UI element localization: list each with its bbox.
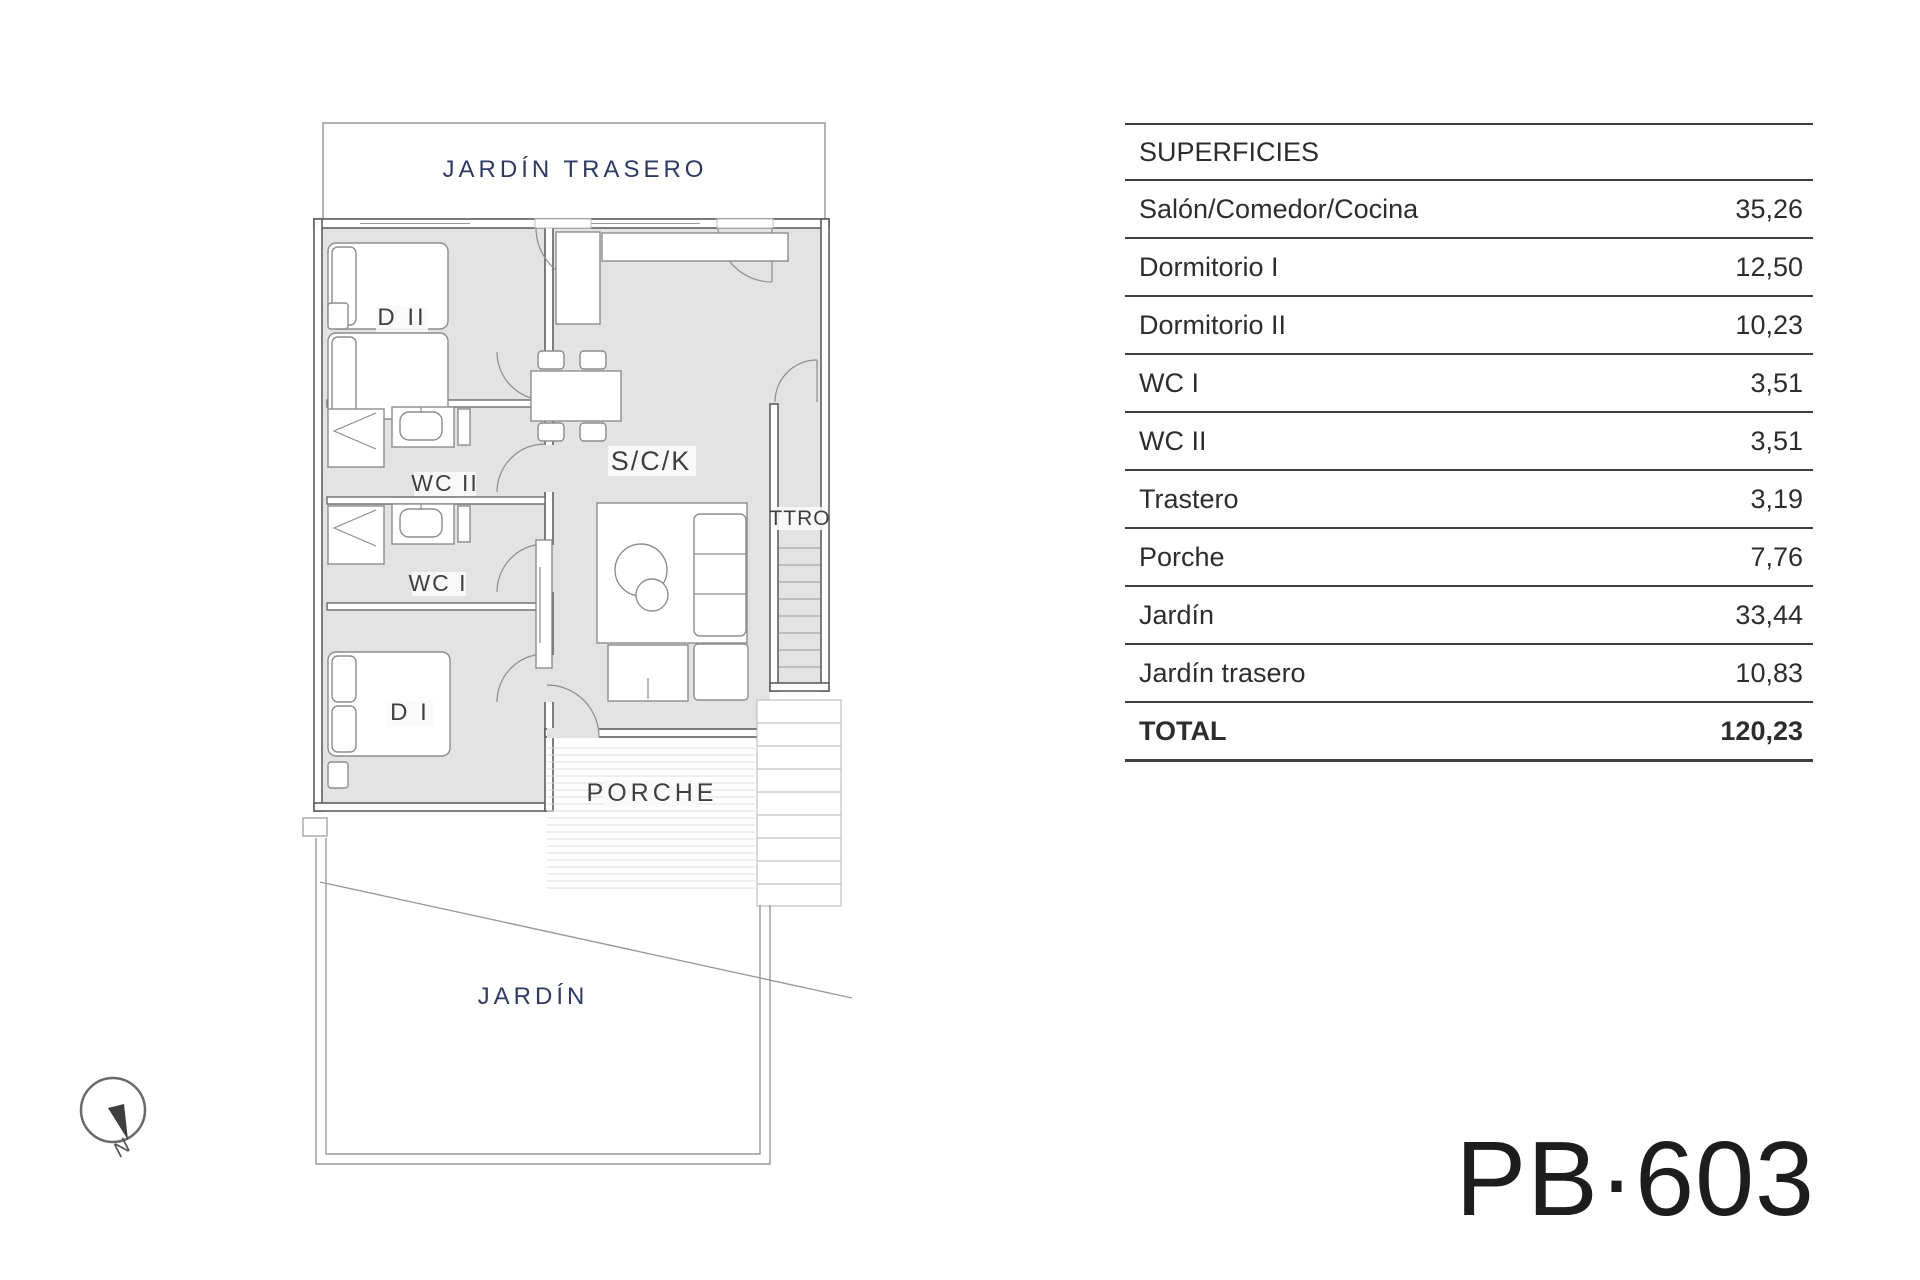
row-value: 10,83 xyxy=(1735,658,1803,689)
table-row: Dormitorio II 10,23 xyxy=(1125,295,1813,353)
room-label-wc2: WC II xyxy=(411,470,479,496)
row-value: 3,51 xyxy=(1750,426,1803,457)
north-label: N xyxy=(109,1134,136,1162)
row-label: WC I xyxy=(1139,368,1199,399)
superficies-table: SUPERFICIES Salón/Comedor/Cocina 35,26 D… xyxy=(1125,123,1813,762)
front-garden-label: JARDÍN xyxy=(478,983,589,1010)
row-value: 12,50 xyxy=(1735,252,1803,283)
porch-label: PORCHE xyxy=(587,779,718,807)
table-row: Jardín trasero 10,83 xyxy=(1125,643,1813,701)
row-label: Jardín trasero xyxy=(1139,658,1306,689)
table-row: Porche 7,76 xyxy=(1125,527,1813,585)
row-value: 7,76 xyxy=(1750,542,1803,573)
table-row: WC II 3,51 xyxy=(1125,411,1813,469)
row-label: Porche xyxy=(1139,542,1225,573)
row-value: 3,51 xyxy=(1750,368,1803,399)
room-label-d1: D I xyxy=(390,699,430,726)
table-row: Jardín 33,44 xyxy=(1125,585,1813,643)
porch-decking xyxy=(547,748,755,888)
row-value: 33,44 xyxy=(1735,600,1803,631)
table-header: SUPERFICIES xyxy=(1139,137,1319,168)
row-value: 3,19 xyxy=(1750,484,1803,515)
row-value: 10,23 xyxy=(1735,310,1803,341)
plan-code: PB·603 xyxy=(1455,1126,1815,1232)
table-header-row: SUPERFICIES xyxy=(1125,123,1813,179)
table-row: Salón/Comedor/Cocina 35,26 xyxy=(1125,179,1813,237)
rear-garden-label: JARDÍN TRASERO xyxy=(443,156,708,183)
total-label: TOTAL xyxy=(1139,716,1227,747)
row-label: Salón/Comedor/Cocina xyxy=(1139,194,1418,225)
row-label: Dormitorio I xyxy=(1139,252,1279,283)
room-label-sck: S/C/K xyxy=(611,446,692,476)
room-label-wc1: WC I xyxy=(408,570,467,596)
row-label: WC II xyxy=(1139,426,1207,457)
room-label-ttro: TTRO xyxy=(769,507,830,530)
total-value: 120,23 xyxy=(1720,716,1803,747)
exterior-stairs xyxy=(757,700,841,906)
row-label: Dormitorio II xyxy=(1139,310,1286,341)
table-row: Dormitorio I 12,50 xyxy=(1125,237,1813,295)
row-label: Jardín xyxy=(1139,600,1214,631)
table-total-row: TOTAL 120,23 xyxy=(1125,701,1813,759)
table-row: Trastero 3,19 xyxy=(1125,469,1813,527)
row-value: 35,26 xyxy=(1735,194,1803,225)
row-label: Trastero xyxy=(1139,484,1239,515)
floorplan-sheet: JARDÍN TRASERO xyxy=(0,0,1920,1280)
north-compass-icon: N xyxy=(81,1078,145,1162)
table-row: WC I 3,51 xyxy=(1125,353,1813,411)
room-label-d2: D II xyxy=(377,304,426,331)
